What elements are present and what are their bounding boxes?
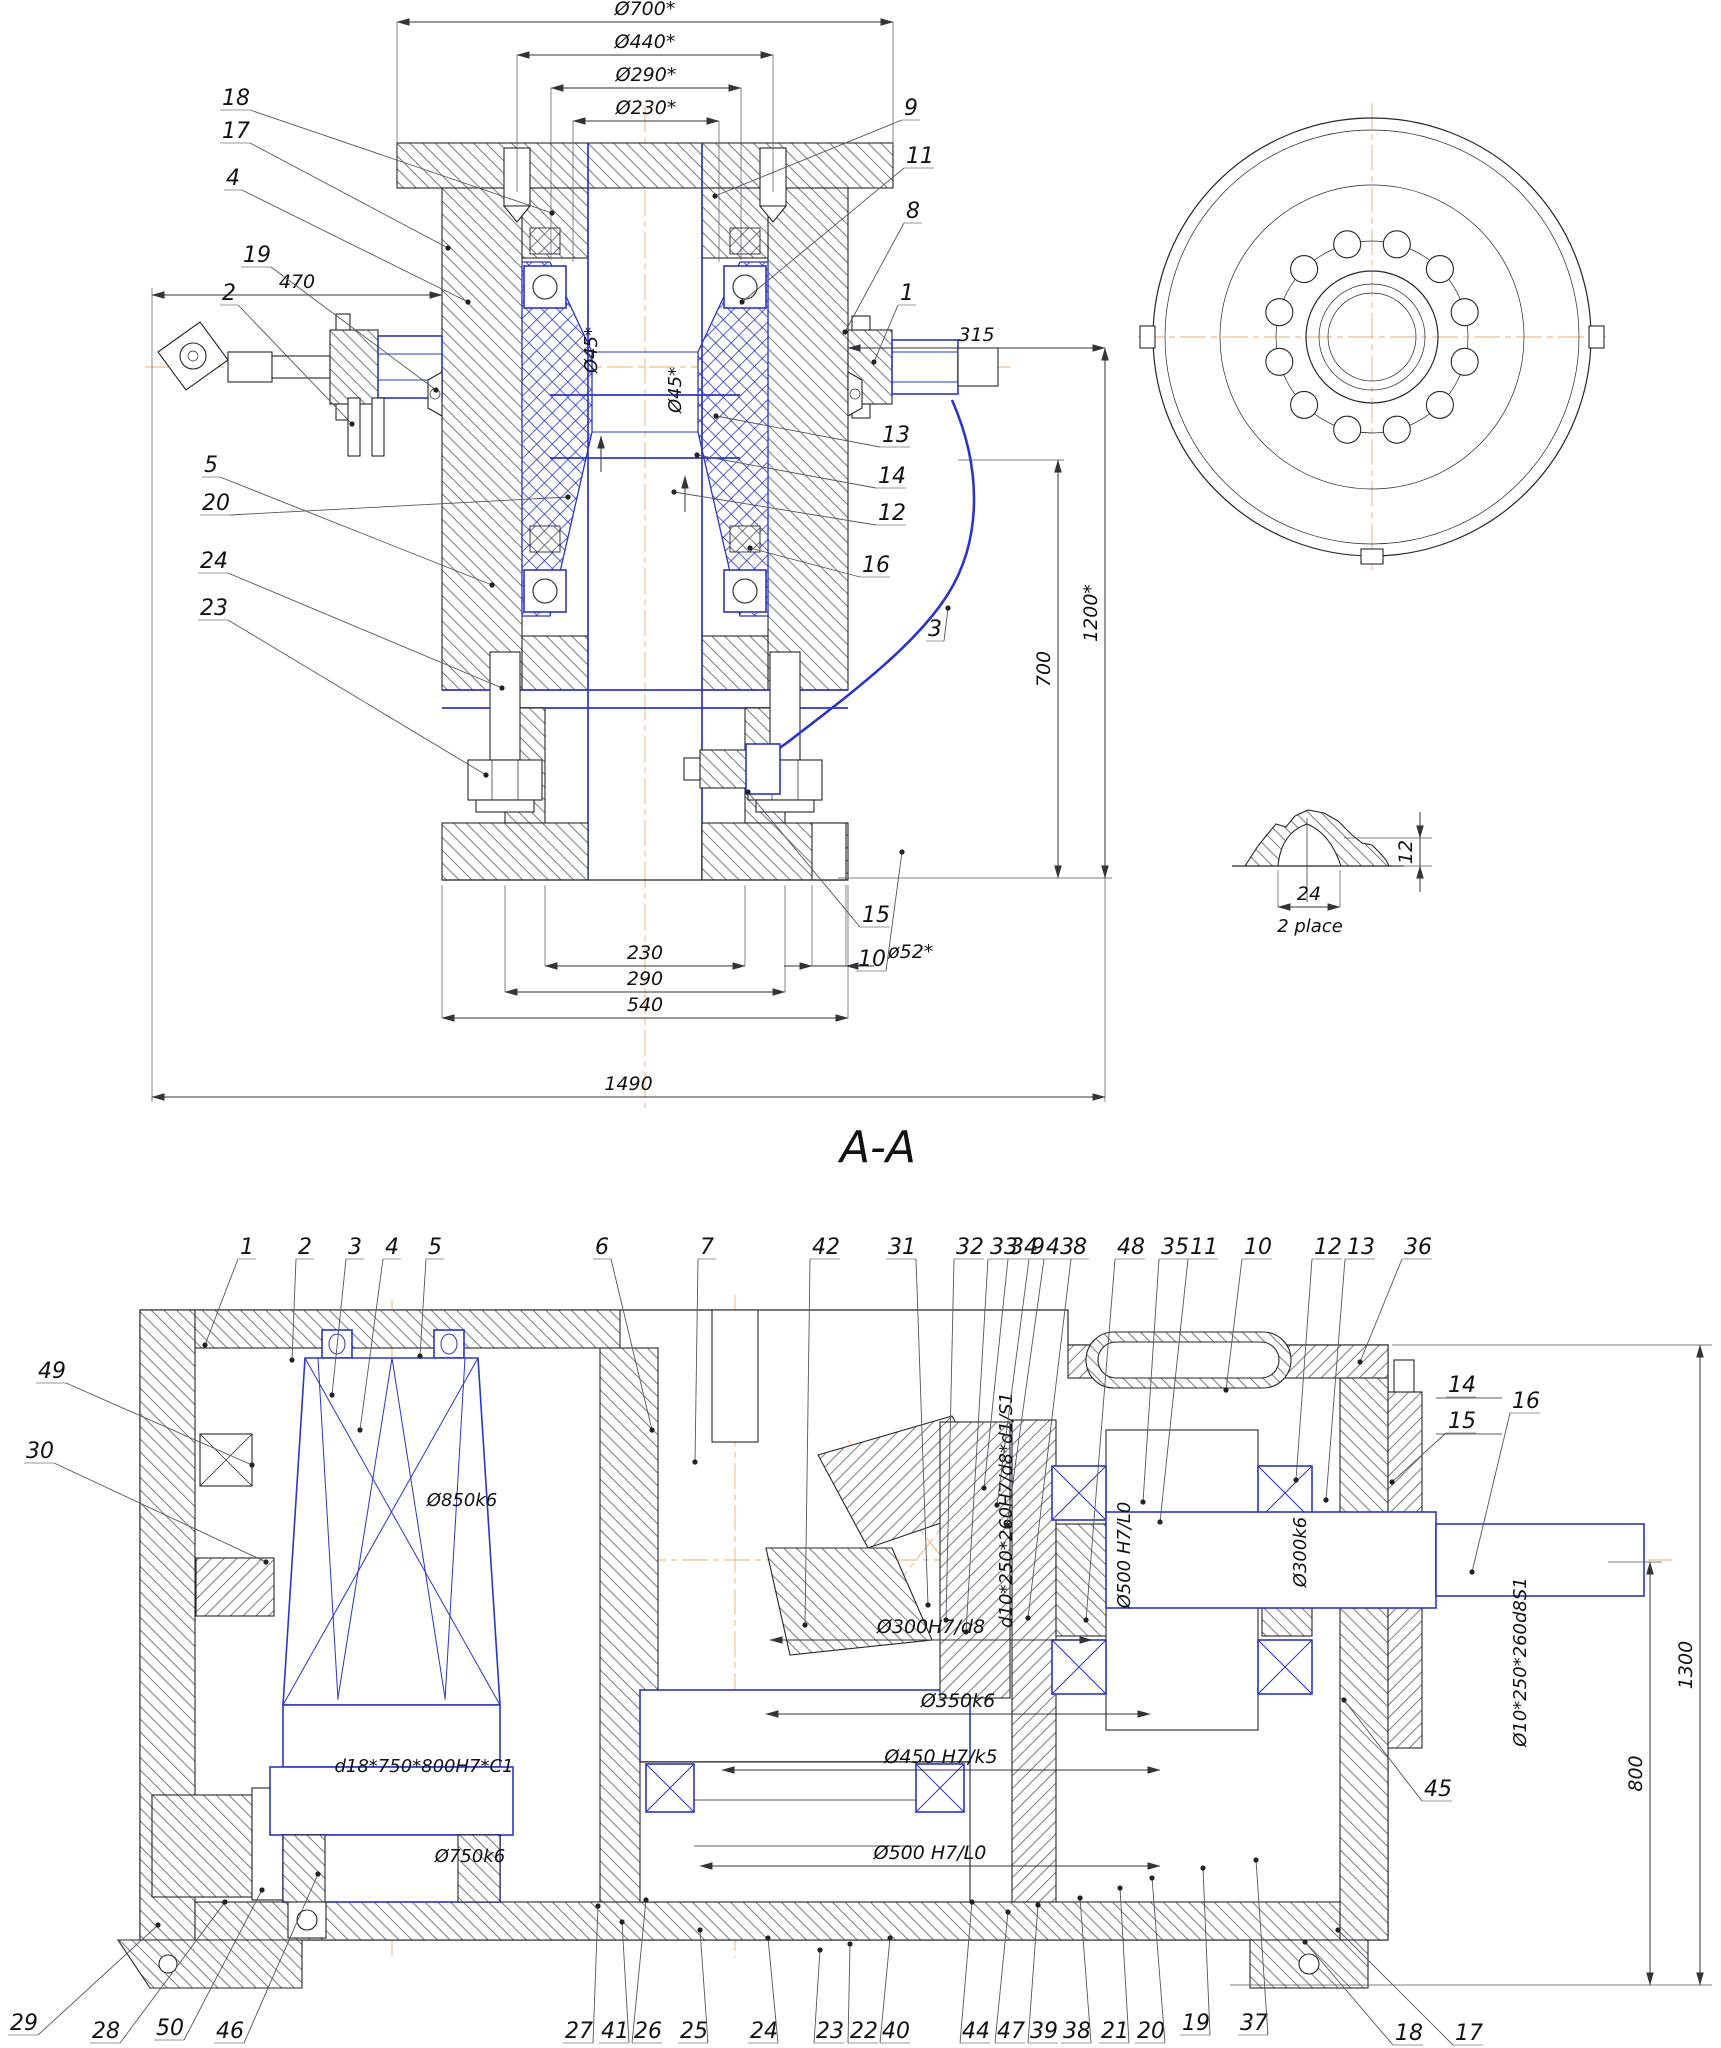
leader-dot — [887, 1935, 892, 1940]
leader-dot — [499, 685, 504, 690]
part-callout: 21 — [1101, 2019, 1129, 2044]
leader-dot — [1469, 1569, 1474, 1574]
part-callout: 20 — [202, 491, 230, 516]
part-callout: 12 — [1314, 1235, 1342, 1260]
part-callout: 27 — [565, 2019, 593, 2044]
leader-dot — [899, 849, 904, 854]
part-callout: 43 — [1046, 1235, 1074, 1260]
dimension-label: 315 — [958, 324, 994, 346]
annotation-label: Ø10*250*260d8S1 — [1510, 1577, 1531, 1748]
part-callout: 7 — [700, 1235, 714, 1260]
part-callout: 36 — [1404, 1235, 1432, 1260]
part-callout: 39 — [1030, 2019, 1058, 2044]
annotation-label: Ø45* — [581, 327, 602, 374]
annotation-label: d18*750*800H7*C1 — [334, 1756, 513, 1777]
leader-dot — [1253, 1857, 1258, 1862]
leader-line — [845, 223, 904, 332]
leader-dot — [969, 1899, 974, 1904]
leader-dot — [1389, 1479, 1394, 1484]
leader-dot — [1140, 1499, 1145, 1504]
leader-dot — [222, 1899, 227, 1904]
dimension-label: Ø300H7/d8 — [876, 1616, 985, 1638]
leader-dot — [315, 1871, 320, 1876]
part-callout: 10 — [1244, 1235, 1272, 1260]
leader-dot — [747, 545, 752, 550]
leader-dot — [465, 299, 470, 304]
dimension-label: 700 — [1033, 651, 1055, 687]
dimension-label: 24 — [1297, 883, 1321, 905]
leader-dot — [925, 1602, 930, 1607]
annotation-label: 2 place — [1277, 916, 1343, 937]
annotation-label: d10*250*260H7/d8*d1/S1 — [996, 1392, 1017, 1628]
part-callout: 24 — [750, 2019, 778, 2044]
part-callout: 35 — [1161, 1235, 1189, 1260]
part-callout: 25 — [680, 2019, 708, 2044]
part-callout: 32 — [956, 1235, 984, 1260]
part-callout: 9 — [1031, 1235, 1045, 1260]
dimension-label: 290 — [627, 968, 663, 990]
dimension-label: Ø440* — [614, 31, 676, 53]
leader-dot — [329, 1392, 334, 1397]
leader-dot — [643, 1897, 648, 1902]
part-callout: 41 — [601, 2019, 629, 2044]
leader-dot — [202, 1342, 207, 1347]
part-callout: 47 — [997, 2019, 1025, 2044]
part-callout: 12 — [878, 501, 906, 526]
leader-dot — [619, 1919, 624, 1924]
part-callout: 16 — [862, 553, 890, 578]
leader-dot — [417, 1353, 422, 1358]
leader-dot — [445, 245, 450, 250]
leader-dot — [765, 1935, 770, 1940]
part-callout: 2 — [222, 281, 236, 306]
leader-dot — [1149, 1875, 1154, 1880]
leader-line — [242, 190, 468, 302]
leader-dot — [963, 1629, 968, 1634]
dimension-label: 540 — [627, 994, 663, 1016]
part-callout: 20 — [1137, 2019, 1165, 2044]
part-callout: 15 — [862, 903, 890, 928]
part-callout: 38 — [1063, 2019, 1091, 2044]
leader-dot — [155, 1922, 160, 1927]
leader-line — [695, 1259, 698, 1462]
leader-dot — [981, 1485, 986, 1490]
leader-dot — [1335, 1927, 1340, 1932]
annotation-label: Ø850k6 — [426, 1490, 497, 1511]
leader-dot — [259, 1887, 264, 1892]
part-callout: 15 — [1448, 1409, 1476, 1434]
part-callout: 1 — [240, 1235, 254, 1260]
dimension-label: 800 — [1625, 1755, 1647, 1791]
dimension-label: 1490 — [604, 1073, 652, 1095]
end-view — [1138, 103, 1606, 571]
leader-dot — [745, 789, 750, 794]
dimension-label: Ø700* — [614, 0, 676, 20]
part-callout: 1 — [900, 281, 914, 306]
part-callout: 42 — [812, 1235, 840, 1260]
part-callout: 13 — [882, 423, 910, 448]
leader-line — [1203, 1868, 1210, 2035]
part-callout: 6 — [595, 1235, 609, 1260]
dimension-label: ø52* — [887, 941, 933, 963]
part-callout: 19 — [1182, 2011, 1210, 2036]
leader-line — [944, 608, 948, 641]
leader-dot — [1357, 1359, 1362, 1364]
leader-dot — [1077, 1895, 1082, 1900]
part-callout: 48 — [1117, 1235, 1145, 1260]
leader-dot — [697, 1927, 702, 1932]
part-callout: 40 — [882, 2019, 910, 2044]
part-callout: 37 — [1240, 2011, 1268, 2036]
drawing-canvas: Ø700*Ø440*Ø290*Ø230*470315230290540ø52*1… — [0, 0, 1721, 2048]
part-callout: 18 — [222, 86, 250, 111]
leader-dot — [817, 1947, 822, 1952]
dimension-label: Ø500 H7/L0 — [873, 1842, 987, 1864]
part-callout: 3 — [348, 1235, 362, 1260]
leader-dot — [713, 413, 718, 418]
part-callout: 5 — [428, 1235, 442, 1260]
dimension-label: 470 — [279, 271, 315, 293]
leader-dot — [671, 489, 676, 494]
leader-dot — [1025, 1615, 1030, 1620]
part-callout: 14 — [878, 464, 906, 489]
part-callout: 29 — [10, 2011, 38, 2036]
dimension-label: 230 — [627, 942, 663, 964]
leader-dot — [1117, 1885, 1122, 1890]
leader-dot — [249, 1462, 254, 1467]
part-callout: 9 — [904, 96, 918, 121]
part-callout: 23 — [200, 596, 228, 621]
leader-dot — [1223, 1387, 1228, 1392]
drawing-sheet: Ø700*Ø440*Ø290*Ø230*470315230290540ø52*1… — [0, 0, 1721, 2048]
leader-dot — [802, 1622, 807, 1627]
leader-dot — [289, 1357, 294, 1362]
annotation-label: Ø45* — [665, 367, 686, 414]
leader-dot — [565, 494, 570, 499]
part-callout: 3 — [928, 617, 942, 642]
part-callout: 14 — [1448, 1373, 1476, 1398]
part-callout: 11 — [906, 144, 934, 169]
detail-view: 24122 place — [1232, 810, 1432, 937]
part-callout: 10 — [858, 947, 886, 972]
leader-dot — [1341, 1697, 1346, 1702]
part-callout: 17 — [222, 119, 250, 144]
leader-dot — [433, 387, 438, 392]
leader-dot — [595, 1903, 600, 1908]
leader-dot — [847, 1941, 852, 1946]
dimension-label: 1300 — [1675, 1641, 1697, 1689]
annotation-label: Ø300k6 — [1290, 1517, 1311, 1588]
leader-dot — [712, 193, 717, 198]
part-callout: 30 — [26, 1439, 54, 1464]
leader-dot — [357, 1427, 362, 1432]
leader-dot — [945, 605, 950, 610]
part-callout: 24 — [200, 549, 228, 574]
annotation-label: Ø750k6 — [434, 1846, 505, 1867]
leader-dot — [739, 299, 744, 304]
leader-dot — [871, 359, 876, 364]
dimension-label: Ø350k6 — [920, 1690, 995, 1712]
part-callout: 8 — [906, 199, 920, 224]
dimension-label: Ø450 H7/k5 — [883, 1746, 997, 1768]
leader-dot — [1005, 1909, 1010, 1914]
part-callout: 23 — [816, 2019, 844, 2044]
leader-dot — [1004, 1522, 1009, 1527]
leader-dot — [483, 772, 488, 777]
part-callout: 18 — [1395, 2021, 1423, 2046]
dimension-label: Ø290* — [615, 64, 677, 86]
part-callout: 28 — [92, 2019, 120, 2044]
leader-dot — [1200, 1865, 1205, 1870]
leader-dot — [694, 452, 699, 457]
dimension-label: 1200* — [1080, 584, 1102, 642]
leader-dot — [349, 421, 354, 426]
part-callout: 22 — [850, 2019, 878, 2044]
part-callout: 46 — [216, 2019, 244, 2044]
leader-dot — [1083, 1617, 1088, 1622]
part-callout: 17 — [1455, 2021, 1483, 2046]
part-callout: 16 — [1512, 1389, 1540, 1414]
dimension-label: Ø230* — [615, 97, 677, 119]
part-callout: 13 — [1347, 1235, 1375, 1260]
annotation-label: Ø500 H7/L0 — [1114, 1502, 1135, 1610]
part-callout: 4 — [385, 1235, 399, 1260]
dimension-label: 12 — [1395, 840, 1417, 864]
leader-dot — [1157, 1519, 1162, 1524]
leader-dot — [1293, 1477, 1298, 1482]
part-callout: 2 — [298, 1235, 312, 1260]
part-callout: 19 — [243, 243, 271, 268]
part-callout: 5 — [204, 453, 218, 478]
leader-dot — [1035, 1902, 1040, 1907]
front-section-view: Ø700*Ø440*Ø290*Ø230*470315230290540ø52*1… — [145, 0, 1112, 1108]
leader-dot — [649, 1427, 654, 1432]
section-title: A-A — [837, 1122, 916, 1173]
part-callout: 26 — [634, 2019, 662, 2044]
section-aa-view: A-A — [8, 1122, 1712, 2046]
part-callout: 44 — [962, 2019, 990, 2044]
leader-dot — [1323, 1497, 1328, 1502]
leader-dot — [1302, 1939, 1307, 1944]
part-callout: 4 — [226, 166, 240, 191]
part-callout: 11 — [1190, 1235, 1218, 1260]
leader-dot — [842, 329, 847, 334]
part-callout: 45 — [1424, 1777, 1452, 1802]
part-callout: 8 — [1073, 1235, 1087, 1260]
leader-dot — [549, 210, 554, 215]
leader-dot — [489, 582, 494, 587]
leader-dot — [263, 1559, 268, 1564]
part-callout: 50 — [156, 2016, 184, 2041]
part-callout: 31 — [888, 1235, 916, 1260]
input-shaft-assembly — [158, 314, 442, 456]
part-callout: 49 — [38, 1359, 66, 1384]
leader-dot — [994, 1502, 999, 1507]
leader-dot — [692, 1459, 697, 1464]
leader-dot — [943, 1617, 948, 1622]
